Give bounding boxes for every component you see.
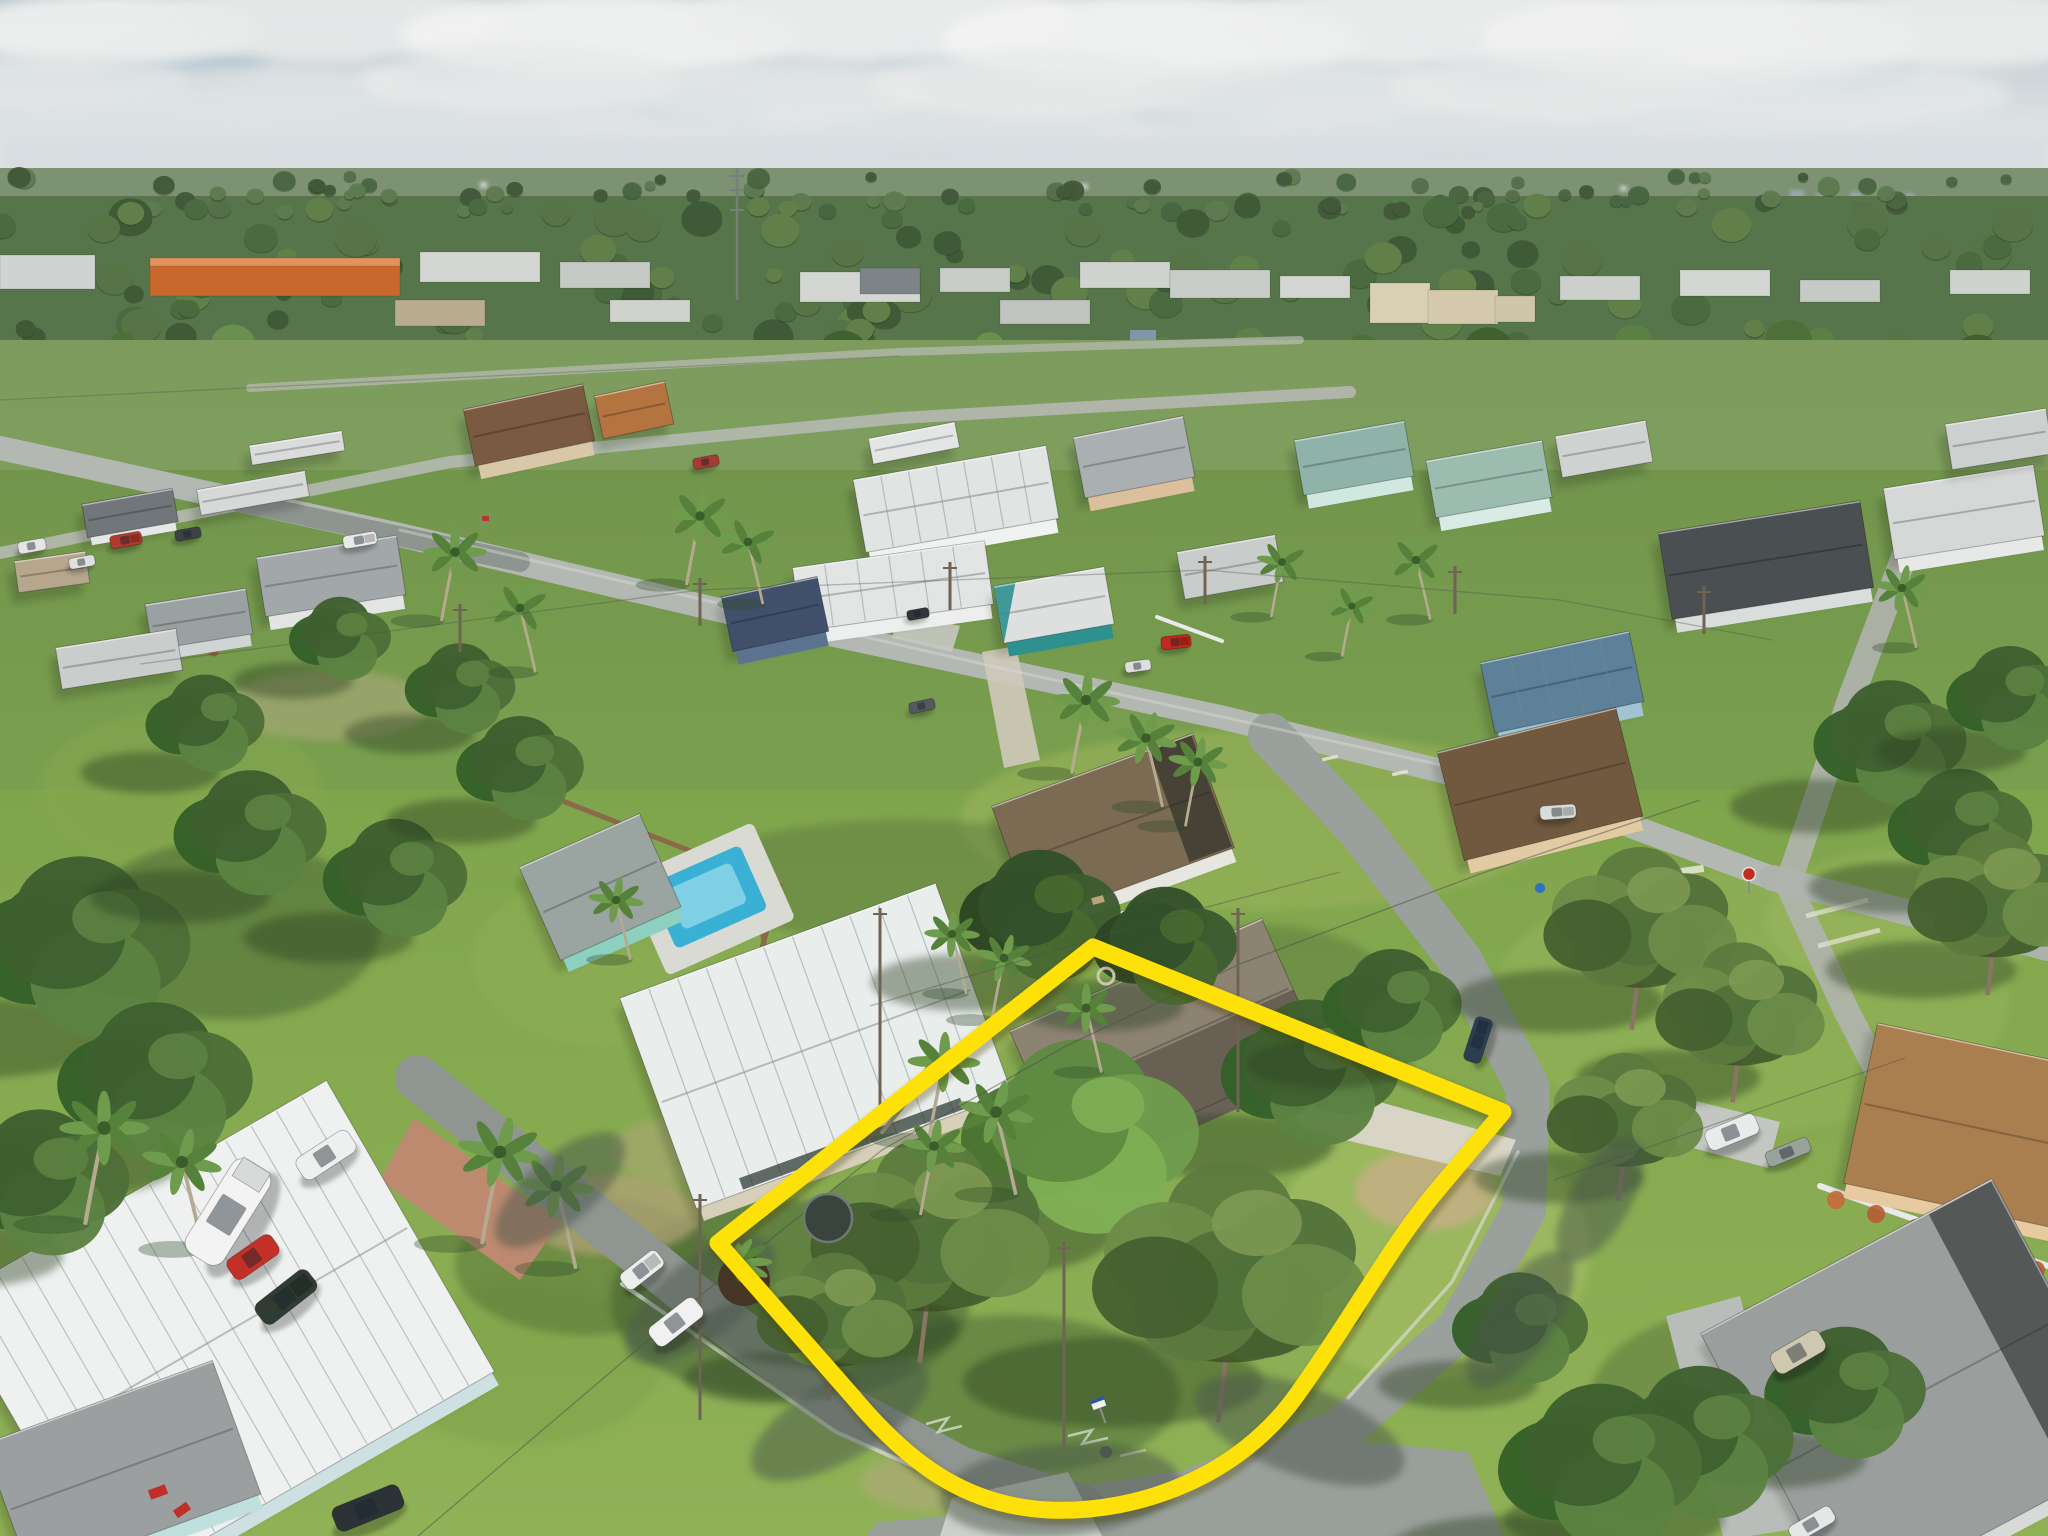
pine-highlight [1212,1190,1302,1256]
tree-blob [486,186,504,202]
palm-shadow [1386,614,1433,625]
palm-crown [990,1106,1002,1118]
vehicle-glass [120,535,131,545]
tree-blob [686,189,700,201]
vehicle-glass [26,542,36,551]
tree-blob [645,181,656,190]
palm-crown [1082,1004,1091,1013]
pine-highlight [1627,867,1690,913]
tree-blob [1511,176,1524,187]
palm-shadow [717,598,766,610]
pine-clump [940,1209,1049,1297]
pine-highlight [825,1269,876,1306]
cloud [30,107,210,143]
tree-blob [1798,173,1808,182]
leaf-highlight [2006,666,2045,696]
palm-shadow [414,1235,486,1253]
palm-crown [1000,954,1009,963]
tree-blob [1423,197,1459,228]
tree-blob [682,201,723,236]
tree-blob [305,198,333,221]
distant-building [1950,270,2030,294]
tree-blob [1818,177,1840,195]
distant-building [1428,290,1498,324]
tree-blob [958,198,975,213]
pine-clump [1547,1095,1618,1153]
palm-crown [1898,584,1906,592]
tree-blob [1365,242,1402,274]
tree-blob [934,231,962,255]
palm-crown [176,1156,188,1168]
pine-clump [1092,1237,1218,1339]
pine-clump [1655,988,1732,1051]
distant-tower [1620,186,1627,191]
distant-building [610,300,690,322]
tree-blob [1511,268,1541,294]
tree-blob [469,199,488,215]
tree-blob [1946,177,1957,187]
distant-building [150,262,400,296]
palm-crown [744,538,753,547]
tree-blob [244,224,278,253]
vehicle-glass [1133,662,1142,670]
distant-building [150,258,400,266]
tree-blob [246,188,264,203]
tree-blob [16,320,36,337]
tree-blob [747,168,770,187]
stop-sign [1743,868,1756,881]
leaf-highlight [1034,875,1083,913]
cloud [360,46,680,114]
tree-blob [1921,235,1950,260]
tree-blob [1854,228,1880,250]
palm-crown [1081,695,1091,705]
tree-blob [506,182,523,196]
tree-blob [1676,198,1697,216]
pine-clump [1747,993,1824,1056]
tree-blob [766,268,782,282]
tree-blob [1609,195,1623,207]
palm-crown [1194,758,1203,767]
palm-shadow [1230,612,1273,623]
aerial-photo [0,0,2048,1536]
aerial-neighborhood-photo [0,0,2048,1536]
palm-shadow [1112,800,1166,813]
pine-highlight [1729,960,1784,1000]
tree-blob [882,210,903,228]
distant-building [860,268,920,294]
leaf-highlight [456,661,490,687]
tree-blob [210,187,226,201]
tree-blob [867,196,880,207]
leaf-highlight [1593,1416,1655,1464]
tree-blob [1336,173,1356,190]
pickup-bed [1180,637,1190,646]
tree-blob [761,214,800,247]
tree-blob [335,221,377,257]
vehicle-glass [183,530,192,538]
distant-tower [480,182,487,188]
pine-clump [1543,900,1631,971]
tree-blob [1698,188,1710,198]
tree-blob [1699,172,1712,183]
leaf-highlight [336,613,367,637]
tree-blob [1393,202,1411,217]
pickup-bed [1563,807,1574,816]
tree-blob [273,171,296,190]
tree-blob [1234,195,1260,217]
tree-blob [1523,194,1551,218]
tree-blob [185,199,208,219]
tree-blob [1472,202,1483,211]
tree-blob [542,202,570,226]
tree-blob [941,189,959,204]
pine-clump [1908,877,1988,942]
leaf-highlight [1387,971,1430,1004]
tree-blob [344,190,355,199]
tree-blob [1562,243,1602,277]
flowering-hedge [1827,1191,1845,1209]
distant-building [0,255,95,289]
tree-blob [1744,320,1764,337]
tree-blob [702,314,722,331]
tree-blob [117,202,144,225]
leaf-highlight [390,842,434,876]
tree-blob [649,267,674,288]
palm-crown [1412,556,1420,564]
palm-crown [494,1146,507,1159]
tree-blob [2000,174,2011,184]
tree-blob [1056,185,1071,198]
vehicle-glass [1551,807,1562,817]
tree-blob [87,215,120,243]
palm-shadow [870,1208,924,1221]
tree-blob [831,239,863,267]
tree-blob [381,189,398,203]
leaf-highlight [1072,1077,1145,1133]
pickup-bed [130,534,141,543]
tree-blob [1668,169,1685,184]
tree-blob [1558,189,1571,200]
vehicle-glass [77,558,86,566]
tree-blob [1992,207,2033,241]
tree-blob [1579,185,1594,198]
tree-blob [865,172,876,182]
palm-crown [1278,558,1286,566]
palm-shadow [488,666,538,678]
tree-blob [1276,172,1292,185]
palm-shadow [391,614,445,627]
tree-blob [310,180,325,193]
tree-blob [1079,203,1093,215]
palm-shadow [1138,820,1188,832]
blue-barrel [1535,883,1545,893]
tree-blob [655,175,666,185]
palm-shadow [515,1261,580,1277]
tree-blob [1712,208,1752,242]
distant-building [1495,296,1535,322]
tree-blob [124,285,144,302]
tree-blob [1508,214,1527,230]
distant-building [940,268,1010,292]
distant-building [1000,300,1090,324]
palm-crown [929,1141,939,1151]
tree-blob [896,226,921,247]
palm-shadow [1305,652,1345,662]
tree-blob [1761,191,1781,208]
tree-blob [863,299,891,323]
tree-blob [179,300,199,317]
leaf-highlight [1160,910,1204,944]
pine-highlight [1615,1069,1666,1106]
trampoline [804,1194,852,1242]
tree-blob [1177,209,1210,237]
tree-blob [153,176,175,194]
tree-blob [1205,201,1229,221]
tree-blob [593,189,607,201]
tree-blob [501,202,514,213]
leaf-highlight [1839,1352,1888,1390]
palm-shadow [586,954,633,965]
palm-shadow [955,1187,1020,1203]
tree-blob [1877,186,1895,201]
tree-blob [747,197,769,216]
tree-blob [1671,292,1710,325]
leaf-highlight [245,795,292,831]
tree-blob [7,167,30,187]
palm-crown [695,511,705,521]
tree-blob [1507,240,1538,267]
pine-highlight [1984,848,2041,890]
pine-clump [842,1300,913,1358]
tree-blob [1461,241,1480,257]
leaf-highlight [148,1033,208,1079]
distant-building [1800,280,1880,302]
tree-blob [1144,179,1161,194]
flowering-hedge [1867,1205,1885,1223]
palm-crown [450,547,460,557]
palm-shadow [1872,642,1919,653]
distant-building [1680,270,1770,296]
tree-blob [1505,190,1519,202]
us-flag [482,516,489,521]
leaf-highlight [201,694,237,722]
distant-building [1280,276,1350,298]
tree-blob [1065,217,1100,247]
distant-building [420,252,540,282]
distant-building [1560,276,1640,300]
tree-blob [267,310,288,328]
distant-building [560,262,650,288]
palm-shadow [636,578,690,591]
tree-blob [276,205,293,220]
tree-blob [626,213,660,242]
vehicle-glass [1170,637,1180,646]
palm-shadow [1017,767,1075,781]
palm-crown [1348,602,1355,609]
leaf-highlight [516,736,555,766]
palm-crown [97,1121,110,1134]
tree-blob [1412,178,1429,193]
tree-blob [623,182,642,198]
palm-shadow [922,988,969,999]
tree-blob [1858,178,1876,194]
leaf-highlight [1955,792,1999,826]
distant-building [1170,270,1270,298]
tree-blob [1134,199,1150,213]
palm-shadow [14,1215,90,1233]
distant-building [1080,262,1170,288]
tree-blob [883,191,906,211]
sky [0,0,2048,182]
palm-crown [516,604,525,613]
palm-crown [1141,733,1151,743]
palm-crown [948,930,956,938]
leaf-highlight [1693,1396,1750,1440]
distant-building [395,300,485,326]
tree-blob [819,204,837,219]
tree-blob [344,171,356,182]
tree-blob [1272,220,1290,236]
vehicle-glass [353,535,364,545]
palm-shadow [1054,1066,1104,1078]
palm-crown [612,896,620,904]
tree-blob [580,235,616,266]
distant-building [1370,283,1430,323]
tree-blob [1322,197,1341,213]
